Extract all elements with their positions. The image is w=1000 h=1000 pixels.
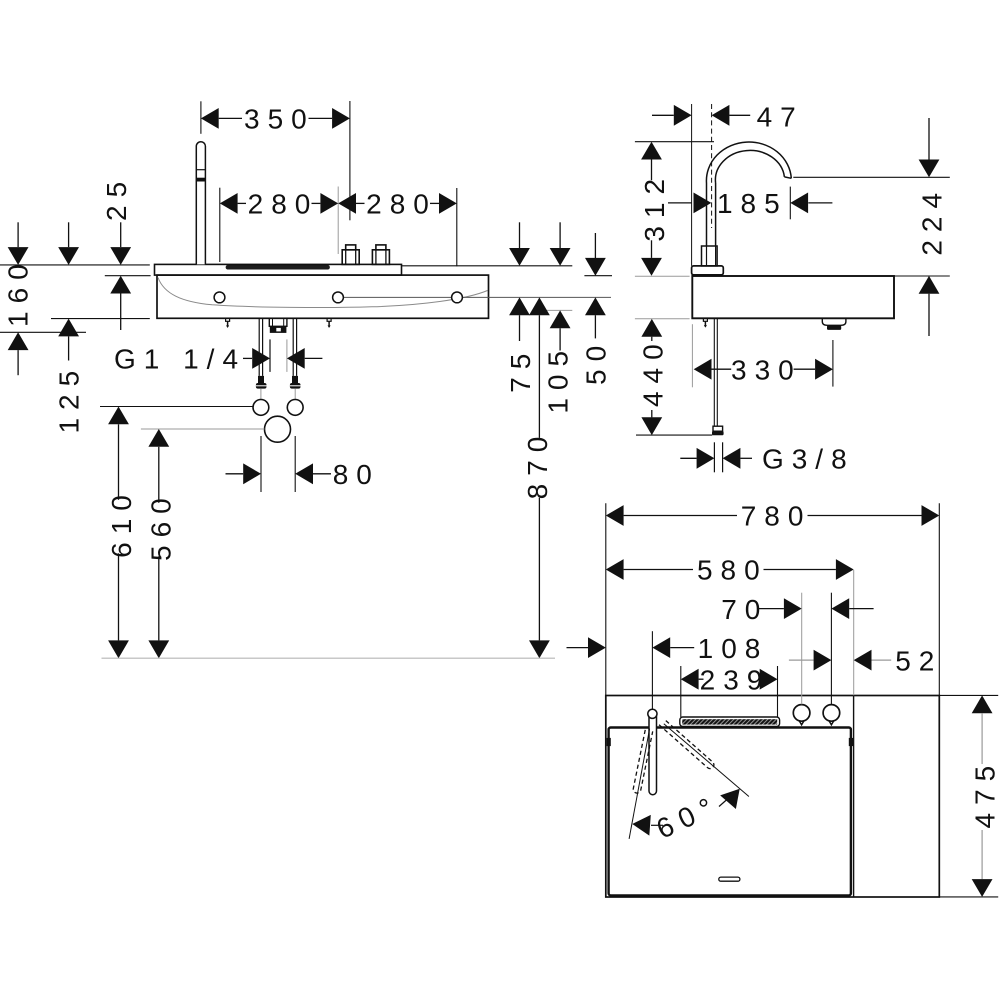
svg-text:50: 50: [581, 338, 612, 385]
svg-text:105: 105: [543, 343, 574, 414]
svg-text:25: 25: [101, 174, 132, 221]
svg-text:G1 1/4: G1 1/4: [114, 344, 246, 375]
svg-text:75: 75: [505, 346, 536, 393]
svg-text:312: 312: [639, 171, 670, 242]
svg-text:280: 280: [248, 189, 319, 220]
svg-text:70: 70: [721, 594, 768, 625]
svg-text:125: 125: [53, 363, 84, 434]
svg-text:60°: 60°: [652, 789, 725, 845]
svg-text:G3/8: G3/8: [762, 444, 855, 475]
svg-text:870: 870: [522, 429, 553, 500]
svg-text:52: 52: [895, 645, 942, 676]
svg-text:780: 780: [741, 501, 812, 532]
svg-text:610: 610: [106, 487, 137, 558]
svg-text:475: 475: [970, 758, 1000, 829]
svg-text:580: 580: [697, 555, 768, 586]
svg-text:224: 224: [917, 185, 948, 256]
svg-text:560: 560: [146, 490, 177, 561]
svg-text:440: 440: [638, 336, 669, 407]
svg-text:239: 239: [700, 664, 771, 695]
svg-text:330: 330: [731, 354, 802, 385]
svg-text:47: 47: [757, 102, 804, 133]
svg-text:160: 160: [3, 256, 34, 327]
svg-text:350: 350: [244, 104, 315, 135]
svg-text:108: 108: [698, 633, 769, 664]
svg-text:185: 185: [717, 188, 788, 219]
svg-text:280: 280: [366, 189, 437, 220]
svg-text:80: 80: [333, 459, 380, 490]
